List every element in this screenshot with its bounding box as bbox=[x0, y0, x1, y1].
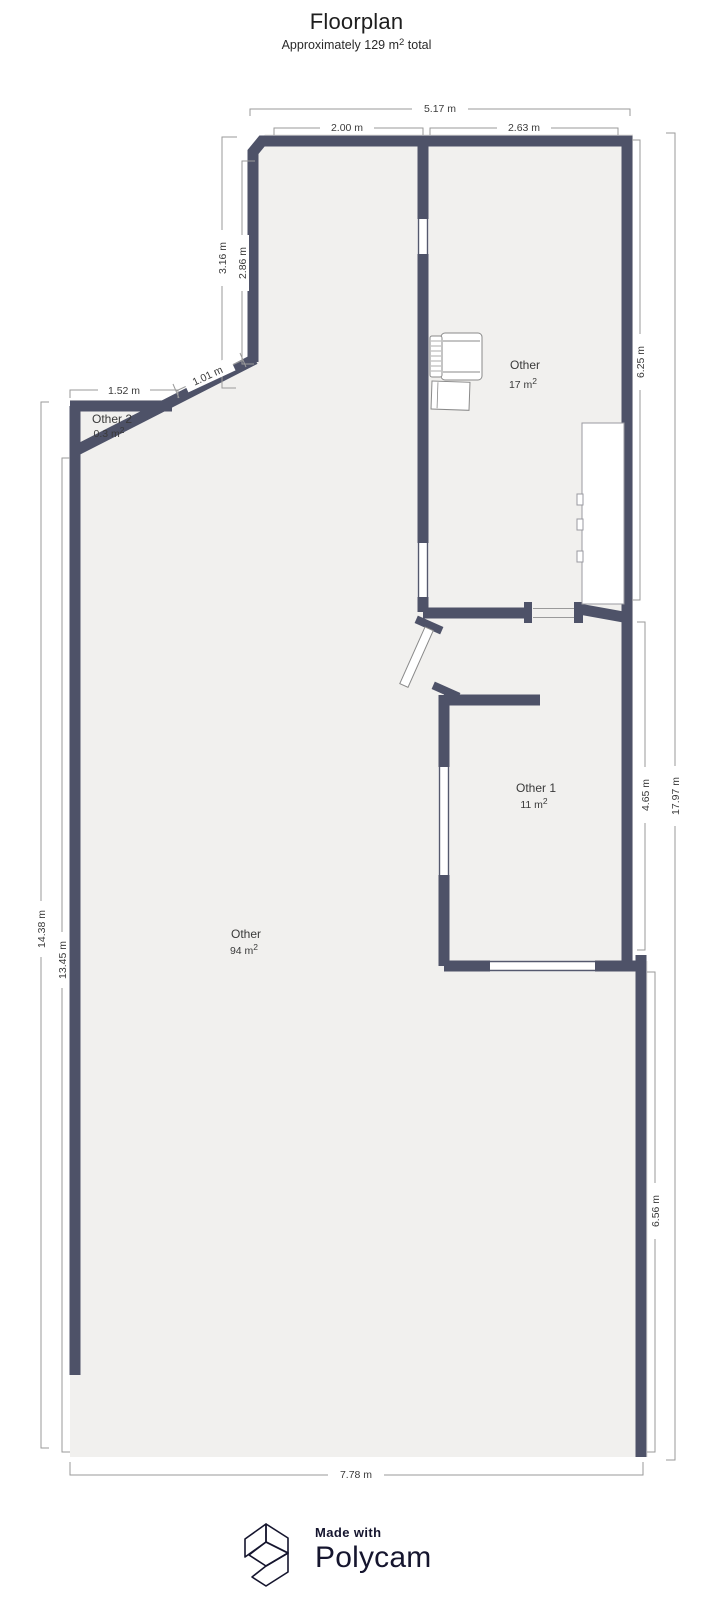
armchair bbox=[430, 333, 482, 380]
dim-label-286: 2.86 m bbox=[237, 247, 249, 279]
closet-handle bbox=[577, 551, 583, 562]
footer: Made with Polycam bbox=[242, 1517, 431, 1589]
dim-label-152: 1.52 m bbox=[108, 385, 140, 397]
closet bbox=[577, 423, 624, 604]
made-with-text: Made with bbox=[315, 1525, 431, 1540]
dim-label-1797: 17.97 m bbox=[670, 777, 682, 815]
dim-label-1438: 14.38 m bbox=[36, 910, 48, 948]
window-other1-left bbox=[439, 767, 450, 875]
dim-label-top-overall: 5.17 m bbox=[424, 103, 456, 115]
svg-text:Other 2: Other 2 bbox=[92, 412, 132, 426]
dim-label-625: 6.25 m bbox=[635, 346, 647, 378]
dim-label-top-left: 2.00 m bbox=[331, 122, 363, 134]
dim-label-316: 3.16 m bbox=[217, 242, 229, 274]
dim-label-top-right: 2.63 m bbox=[508, 122, 540, 134]
svg-text:Other: Other bbox=[510, 358, 540, 372]
window-other1-bottom bbox=[490, 961, 595, 972]
door-jamb-left bbox=[524, 602, 532, 623]
floorplan-page: Floorplan Approximately 129 m2 total bbox=[0, 0, 713, 1600]
dim-label-1345: 13.45 m bbox=[57, 941, 69, 979]
dim-label-465: 4.65 m bbox=[640, 779, 652, 811]
dim-label-bottom: 7.78 m bbox=[340, 1469, 372, 1481]
polycam-logo-icon bbox=[242, 1517, 300, 1589]
svg-text:Other: Other bbox=[231, 927, 261, 941]
closet-handle bbox=[577, 519, 583, 530]
closet-handle bbox=[577, 494, 583, 505]
floorplan-svg: 5.17 m 2.00 m 2.63 m 3.16 m 2.86 m 1.52 … bbox=[0, 0, 713, 1600]
floor-area bbox=[70, 134, 648, 1457]
svg-text:Other 1: Other 1 bbox=[516, 781, 556, 795]
window-divider-upper bbox=[418, 219, 429, 254]
ottoman bbox=[431, 381, 470, 410]
door-jamb-right bbox=[574, 602, 583, 623]
dim-label-656: 6.56 m bbox=[650, 1195, 662, 1227]
polycam-wordmark: Polycam bbox=[315, 1541, 431, 1575]
window-divider-lower bbox=[418, 543, 429, 597]
